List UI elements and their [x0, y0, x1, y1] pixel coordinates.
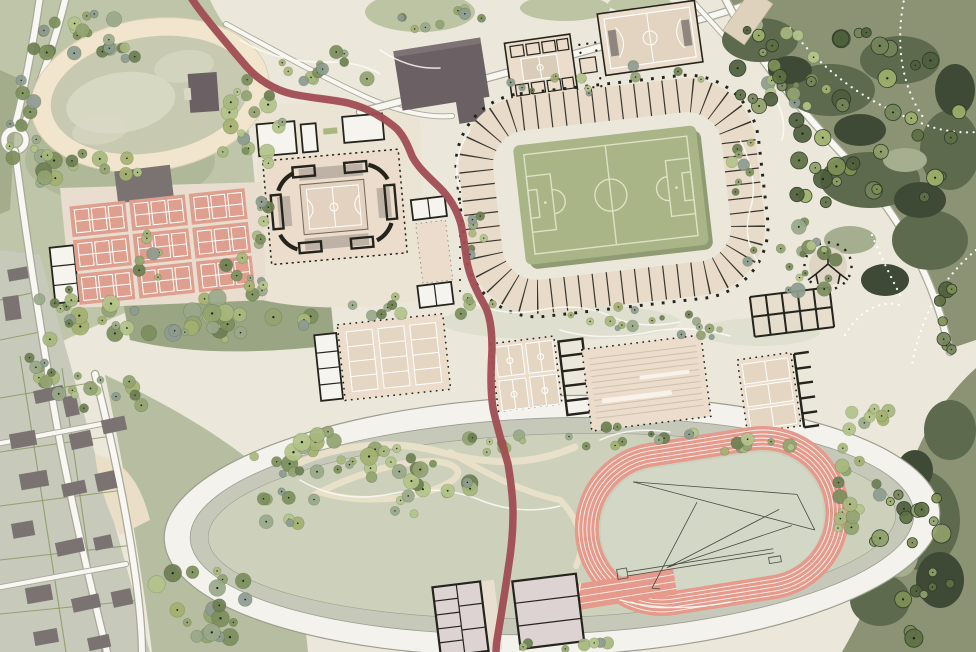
- tree: [605, 316, 616, 327]
- tree: [71, 392, 78, 399]
- tree: [614, 302, 623, 311]
- tree: [748, 94, 758, 104]
- tree: [776, 244, 785, 253]
- tree: [873, 488, 886, 501]
- tree: [743, 26, 751, 34]
- tree: [209, 580, 226, 597]
- tree: [47, 368, 55, 376]
- tree: [911, 60, 921, 70]
- tree: [922, 52, 939, 69]
- tree: [750, 247, 757, 254]
- tree: [133, 264, 146, 277]
- tree: [293, 433, 311, 451]
- tree: [387, 300, 397, 310]
- tree: [183, 618, 191, 626]
- tree: [130, 390, 141, 401]
- tree: [582, 442, 590, 450]
- tree: [834, 512, 847, 525]
- tree: [601, 422, 612, 433]
- tree: [613, 423, 621, 431]
- tree: [6, 142, 14, 150]
- tree: [234, 88, 241, 95]
- tree: [49, 17, 60, 28]
- tree: [360, 448, 378, 466]
- tree: [52, 387, 66, 401]
- tree: [791, 152, 808, 169]
- tree: [242, 147, 249, 154]
- tree: [709, 334, 715, 340]
- tree: [878, 69, 897, 88]
- tree: [886, 497, 894, 505]
- tree: [203, 304, 221, 322]
- tree: [806, 77, 816, 87]
- tree: [393, 444, 402, 453]
- tree: [787, 87, 800, 100]
- tree: [135, 256, 145, 266]
- tree: [486, 439, 493, 446]
- tree: [947, 345, 957, 355]
- tree: [155, 274, 162, 281]
- tree: [905, 629, 923, 647]
- tree: [256, 196, 268, 208]
- tree: [649, 317, 656, 324]
- tree: [97, 376, 104, 383]
- tree: [562, 645, 570, 652]
- tree: [299, 76, 309, 86]
- tree: [729, 60, 746, 77]
- tree: [468, 433, 477, 442]
- tree: [213, 567, 221, 575]
- tree: [147, 247, 160, 260]
- tree: [340, 58, 349, 67]
- tree: [271, 457, 281, 467]
- hall-west: [504, 34, 577, 101]
- tree: [833, 477, 845, 489]
- tree: [66, 155, 78, 167]
- tree: [130, 306, 139, 315]
- tree: [244, 281, 255, 292]
- tree: [284, 67, 293, 76]
- tree: [295, 466, 304, 475]
- tree: [576, 73, 586, 83]
- tree: [846, 406, 859, 419]
- tree: [395, 307, 408, 320]
- tree: [791, 219, 806, 234]
- tree: [203, 624, 220, 641]
- tree: [286, 519, 294, 527]
- tree: [753, 29, 766, 42]
- tree: [429, 460, 436, 467]
- tree: [263, 158, 274, 169]
- tree: [928, 583, 936, 591]
- tree: [360, 72, 375, 87]
- tree: [810, 162, 821, 173]
- tree: [912, 129, 924, 141]
- tree: [735, 90, 745, 100]
- tree: [402, 490, 415, 503]
- tree: [920, 590, 928, 598]
- tree: [234, 326, 247, 339]
- tree: [790, 283, 805, 298]
- tree: [220, 259, 233, 272]
- tree: [455, 308, 467, 320]
- tree: [121, 54, 130, 63]
- tree: [746, 168, 754, 176]
- tree: [100, 164, 110, 174]
- tree: [164, 564, 182, 582]
- tree: [946, 579, 955, 588]
- tree: [376, 309, 386, 319]
- tree: [568, 312, 574, 318]
- tree: [462, 477, 472, 487]
- tree: [660, 315, 665, 320]
- tree: [631, 306, 639, 314]
- tree: [630, 72, 640, 82]
- tree: [766, 39, 778, 51]
- tree: [876, 410, 888, 422]
- tree: [38, 25, 49, 36]
- south-building-west: [432, 581, 488, 652]
- tree: [934, 295, 945, 306]
- tree: [944, 131, 957, 144]
- tree: [406, 453, 416, 463]
- tree: [872, 530, 889, 547]
- tree: [674, 67, 683, 76]
- tree: [15, 120, 27, 132]
- tree: [259, 515, 273, 529]
- tree: [235, 573, 251, 589]
- tree: [392, 464, 406, 478]
- tree: [310, 465, 324, 479]
- tree: [937, 332, 950, 345]
- tree: [806, 241, 816, 251]
- tree: [237, 252, 248, 263]
- tree: [520, 438, 526, 444]
- tree: [720, 447, 729, 456]
- tree: [16, 75, 27, 86]
- tree: [466, 297, 473, 304]
- tree: [65, 294, 78, 307]
- tree: [112, 321, 120, 329]
- tree: [76, 24, 90, 38]
- site-plan-svg: [0, 0, 976, 652]
- tree: [279, 59, 286, 66]
- tree: [298, 320, 309, 331]
- swimming-lane-hall: [582, 335, 711, 431]
- tree: [885, 104, 901, 120]
- tree: [337, 456, 346, 465]
- tree: [67, 46, 81, 60]
- tree: [256, 234, 266, 244]
- tree: [519, 643, 527, 651]
- tree: [398, 14, 405, 21]
- tree: [919, 192, 929, 202]
- tree: [42, 150, 53, 161]
- tree: [411, 25, 419, 33]
- tree: [90, 10, 98, 18]
- tree: [677, 330, 686, 339]
- tree: [143, 230, 151, 238]
- tree: [808, 51, 820, 63]
- tree: [793, 30, 804, 41]
- tree: [247, 275, 253, 281]
- tree: [65, 286, 73, 294]
- tree: [477, 14, 485, 22]
- tree: [741, 433, 754, 446]
- tree: [98, 316, 107, 325]
- tree: [847, 157, 860, 170]
- tree: [717, 327, 723, 333]
- tree: [759, 48, 767, 56]
- tree: [278, 118, 286, 126]
- tree: [648, 431, 654, 437]
- tree: [28, 43, 40, 55]
- tree: [412, 461, 428, 477]
- tree: [6, 151, 20, 165]
- tree: [103, 295, 120, 312]
- tree: [265, 309, 282, 326]
- tree: [119, 167, 133, 181]
- tennis-pads: [69, 188, 254, 305]
- tree: [148, 576, 165, 593]
- tree: [565, 433, 572, 440]
- tree: [123, 375, 136, 388]
- tree: [843, 423, 856, 436]
- tree: [345, 461, 353, 469]
- tree: [378, 446, 389, 457]
- tree: [223, 119, 238, 134]
- tree: [120, 152, 133, 165]
- tree: [217, 146, 228, 157]
- tree: [57, 305, 65, 313]
- tree: [735, 179, 742, 186]
- tree: [854, 456, 864, 466]
- tree: [231, 270, 242, 281]
- tree: [586, 318, 593, 325]
- tree: [170, 603, 185, 618]
- tree: [259, 144, 275, 160]
- tree: [820, 197, 831, 208]
- tree: [27, 94, 41, 108]
- tree: [468, 215, 477, 224]
- tree: [334, 465, 342, 473]
- tree: [932, 493, 942, 503]
- tree: [836, 98, 849, 111]
- tree: [238, 593, 252, 607]
- tree: [787, 443, 794, 450]
- tree: [927, 169, 944, 186]
- tree: [83, 381, 97, 395]
- tree: [685, 311, 693, 319]
- tree: [308, 494, 319, 505]
- tree: [366, 310, 377, 321]
- tree: [249, 106, 260, 117]
- tree: [530, 88, 535, 93]
- tree: [874, 144, 889, 159]
- tree: [25, 353, 35, 363]
- tree: [106, 12, 121, 27]
- tree: [786, 263, 794, 271]
- tree: [259, 280, 268, 289]
- tree: [732, 188, 739, 195]
- tree: [34, 294, 45, 305]
- tree: [257, 493, 270, 506]
- tree: [112, 392, 121, 401]
- tree: [553, 73, 559, 79]
- tree: [803, 102, 812, 111]
- tree: [120, 321, 134, 335]
- tree: [6, 120, 14, 128]
- tree: [31, 145, 38, 152]
- tree: [233, 308, 247, 322]
- tree: [421, 23, 431, 33]
- tree: [817, 282, 832, 297]
- tree: [938, 317, 947, 326]
- tree: [391, 293, 399, 301]
- tree: [30, 361, 43, 374]
- tree: [223, 95, 238, 110]
- tree: [348, 301, 357, 310]
- tree: [317, 63, 329, 75]
- tree: [519, 84, 526, 91]
- tree: [82, 12, 91, 21]
- tree: [507, 78, 516, 87]
- tree: [932, 524, 951, 543]
- tree: [264, 90, 275, 101]
- tree: [410, 510, 418, 518]
- tree: [735, 151, 743, 159]
- tree: [894, 490, 904, 500]
- tree: [78, 149, 87, 158]
- tree: [390, 506, 399, 515]
- tree: [822, 85, 831, 94]
- tree: [947, 284, 957, 294]
- tree: [743, 257, 753, 267]
- tree: [698, 76, 705, 83]
- tree: [627, 320, 639, 332]
- tree: [872, 184, 882, 194]
- south-building-east: [512, 574, 584, 649]
- tree: [872, 479, 882, 489]
- tree: [258, 216, 269, 227]
- tree: [585, 85, 592, 92]
- tree: [726, 156, 738, 168]
- site-plan-stage: [0, 0, 976, 652]
- tree: [843, 497, 857, 511]
- tree: [282, 491, 295, 504]
- tree: [120, 43, 130, 53]
- tree: [705, 324, 714, 333]
- tree: [181, 329, 188, 336]
- hall-east: [597, 0, 703, 75]
- tree: [186, 566, 199, 579]
- tree: [827, 157, 845, 175]
- tree: [796, 274, 804, 282]
- tree: [129, 51, 141, 63]
- tree: [861, 28, 871, 38]
- tree: [821, 247, 827, 253]
- tree: [747, 139, 754, 146]
- tree: [441, 484, 455, 498]
- tree: [684, 430, 694, 440]
- tree: [459, 8, 471, 20]
- tree: [469, 230, 477, 238]
- tree: [952, 105, 966, 119]
- tree: [846, 510, 860, 524]
- tree: [133, 168, 142, 177]
- tree: [900, 511, 913, 524]
- tree: [838, 443, 848, 453]
- tree: [773, 70, 787, 84]
- tree: [207, 321, 219, 333]
- tree: [928, 568, 937, 577]
- tree: [169, 325, 181, 337]
- tree: [578, 639, 590, 651]
- tree: [610, 441, 619, 450]
- tree: [905, 112, 918, 125]
- tree: [40, 376, 53, 389]
- tree: [237, 130, 245, 138]
- tree: [39, 45, 54, 60]
- tree: [37, 170, 52, 185]
- tree: [829, 253, 842, 266]
- tree: [241, 91, 252, 102]
- tree: [815, 130, 831, 146]
- tree: [43, 332, 58, 347]
- tree: [696, 324, 703, 331]
- tree: [366, 472, 377, 483]
- tree: [480, 234, 488, 242]
- tree: [907, 538, 917, 548]
- tree: [79, 404, 88, 413]
- tree: [790, 187, 804, 201]
- tree: [229, 618, 237, 626]
- tree: [329, 45, 343, 59]
- tree: [279, 470, 287, 478]
- tree: [489, 300, 497, 308]
- tree: [436, 20, 445, 29]
- tree: [32, 135, 41, 144]
- tree: [618, 322, 625, 329]
- tree: [914, 502, 929, 517]
- tree: [835, 459, 849, 473]
- tree: [871, 37, 889, 55]
- tree: [141, 325, 157, 341]
- tree: [825, 275, 832, 282]
- tree: [310, 427, 325, 442]
- tree: [780, 27, 793, 40]
- tree: [589, 638, 599, 648]
- tree: [832, 177, 841, 186]
- tree: [654, 435, 663, 444]
- tree: [103, 34, 114, 45]
- tree: [789, 113, 804, 128]
- tree: [74, 372, 82, 380]
- tree: [483, 448, 491, 456]
- tree: [250, 452, 259, 461]
- tree: [696, 331, 705, 340]
- tree: [895, 591, 912, 608]
- tree: [833, 31, 849, 47]
- tree: [213, 599, 226, 612]
- tree: [65, 320, 73, 328]
- tree: [191, 630, 203, 642]
- tree: [768, 438, 775, 445]
- tree: [628, 60, 639, 71]
- tree: [929, 517, 938, 526]
